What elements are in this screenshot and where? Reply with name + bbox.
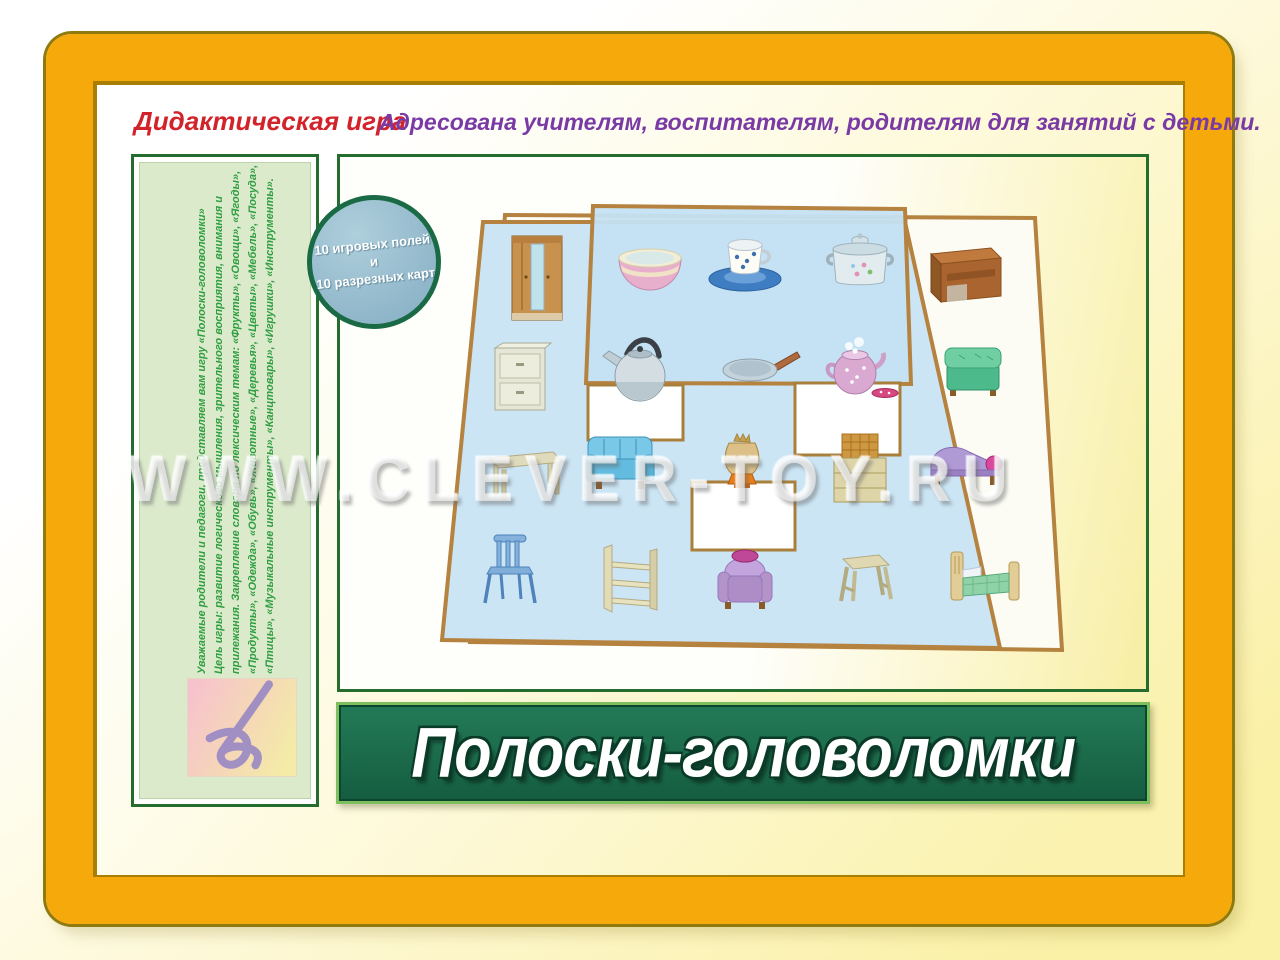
- header-audience: Адресована учителям, воспитателям, родит…: [379, 109, 1261, 137]
- ottoman-icon: [945, 348, 1001, 396]
- wardrobe-icon: [512, 236, 562, 320]
- cutout-window: [692, 482, 795, 550]
- description-line: прилежания. Закрепление словаря по лекси…: [228, 190, 245, 674]
- pink-dish-icon: [872, 389, 898, 398]
- contents-badge-text: 10 игровых полей и 10 разрезных карт: [310, 230, 439, 293]
- description-sidebar: Уважаемые родители и педагоги, представл…: [131, 154, 319, 807]
- publisher-logo: [188, 679, 296, 776]
- sidebar-description: Уважаемые родители и педагоги, представл…: [194, 190, 290, 674]
- header-label: Дидактическая игра: [134, 106, 406, 137]
- game-board-illustration: [430, 196, 1080, 661]
- publisher-script-icon: [188, 679, 296, 776]
- wicker-chest-icon: [834, 434, 886, 502]
- description-line: «Продукты», «Одежда», «Обувь», «Животные…: [245, 190, 262, 674]
- title-banner: Полоски-головоломки: [336, 702, 1150, 804]
- game-box-cover: Дидактическая игра Адресована учителям, …: [0, 0, 1280, 960]
- game-title: Полоски-головоломки: [411, 718, 1075, 789]
- description-line: Уважаемые родители и педагоги, представл…: [194, 190, 211, 674]
- contents-badge: 10 игровых полей и 10 разрезных карт: [307, 195, 441, 329]
- description-line: «Птицы», «Музыкальные инструменты», «Кан…: [262, 190, 279, 674]
- nightstand-icon: [495, 343, 551, 410]
- desk-icon: [931, 248, 1001, 302]
- description-line: Цель игры: развитие логического мышления…: [211, 190, 228, 674]
- sidebar-panel: Уважаемые родители и педагоги, представл…: [139, 162, 311, 799]
